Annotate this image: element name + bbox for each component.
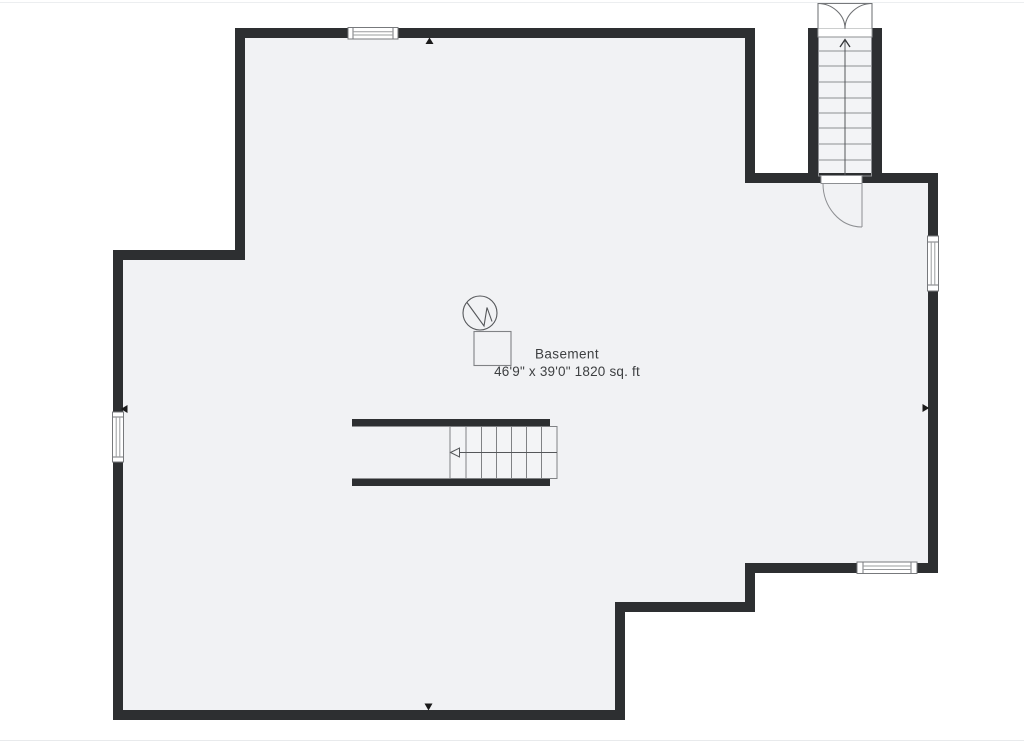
wall-segment: [928, 173, 938, 573]
bottom-right-window: [857, 562, 917, 574]
wall-segment: [235, 28, 245, 260]
top-wall-window: [348, 28, 398, 40]
floor-plan-canvas: Basement 46'9" x 39'0" 1820 sq. ft: [0, 0, 1024, 745]
wall-segment: [113, 250, 123, 720]
wall-segment: [235, 28, 755, 38]
left-wall-window: [113, 412, 124, 462]
wall-segment: [745, 28, 755, 183]
bulkhead-double-door: [818, 4, 872, 29]
wall-segment: [113, 710, 625, 720]
floor-plan-page: Basement 46'9" x 39'0" 1820 sq. ft: [0, 0, 1024, 745]
wall-segment: [615, 602, 625, 720]
wall-segment: [808, 28, 818, 183]
room-dimensions: 46'9" x 39'0" 1820 sq. ft: [494, 364, 640, 379]
door-leaf: [821, 176, 862, 184]
stair-wall: [352, 419, 550, 427]
room-label: Basement: [535, 347, 599, 362]
stair-wall: [352, 479, 550, 487]
wall-segment: [745, 173, 818, 183]
wall-segment: [113, 250, 245, 260]
right-wall-window: [928, 236, 939, 291]
wall-segment: [615, 602, 755, 612]
wall-segment: [872, 28, 882, 183]
bulkhead-threshold: [818, 29, 872, 38]
